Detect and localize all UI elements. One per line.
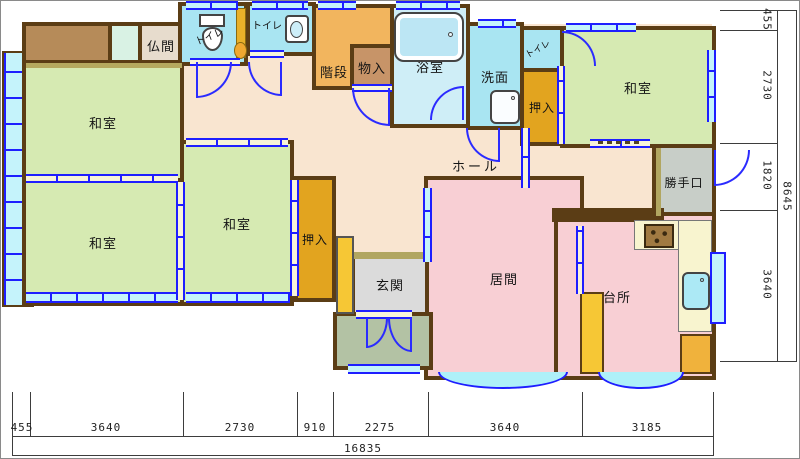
room-washitsu-topleft: 和室 xyxy=(22,60,184,184)
dim-tick xyxy=(713,437,714,456)
bathtub-icon xyxy=(394,12,464,62)
window-living-left xyxy=(423,188,432,262)
sliding-door-hall-mid xyxy=(521,128,530,188)
dim-bottom-3: 910 xyxy=(285,421,345,434)
window-stairs-top xyxy=(318,1,356,10)
stairs-label: 階段 xyxy=(320,62,348,81)
sliding-door-washitsu-bm-top xyxy=(186,138,288,147)
dim-tick xyxy=(582,392,583,437)
shoe-cabinet xyxy=(336,236,354,314)
room-genkan: 玄関 xyxy=(351,252,429,316)
sliding-door-washitsu-bl-bm xyxy=(176,182,185,300)
dim-tick xyxy=(12,437,13,456)
sliding-door-oshiire-center xyxy=(290,180,299,296)
window-washitsu-tr-right xyxy=(707,50,716,122)
window-senmen-top xyxy=(478,19,516,28)
dim-right-0: 455 xyxy=(761,0,774,42)
dim-right-3: 3640 xyxy=(761,263,774,307)
window-toilet1-top xyxy=(186,1,238,10)
dim-bottom-6: 3185 xyxy=(617,421,677,434)
window-bath-top xyxy=(396,1,460,10)
toilet1-heater xyxy=(234,42,247,59)
dim-right-2: 1820 xyxy=(761,154,774,198)
dim-line-right-total xyxy=(796,10,797,362)
dim-tick xyxy=(720,143,777,144)
door-katteguchi xyxy=(714,150,750,186)
dim-line-right xyxy=(777,10,778,362)
window-washitsu-tr-top xyxy=(566,23,636,32)
dim-line-bottom xyxy=(12,436,714,437)
monoire-label: 物入 xyxy=(358,58,386,77)
urinal-bowl-icon xyxy=(290,21,303,38)
room-washitsu-bottomleft: 和室 xyxy=(22,178,184,306)
dim-right-1: 2730 xyxy=(761,64,774,108)
oshiire-label: 押入 xyxy=(302,231,328,248)
dim-bottom-1: 3640 xyxy=(76,421,136,434)
sliding-door-washitsu-tl-bl xyxy=(26,174,178,183)
dim-tick xyxy=(720,10,796,11)
window-toilet2-top xyxy=(252,1,308,10)
stove-icon xyxy=(644,224,674,248)
washitsu-label: 和室 xyxy=(89,233,117,252)
dim-bottom-0: 455 xyxy=(3,421,41,434)
threshold-katteguchi xyxy=(656,148,661,216)
window-washitsu-bl-bottom xyxy=(26,292,178,303)
room-oshiire-center: 押入 xyxy=(294,176,336,302)
dim-bottom-5: 3640 xyxy=(475,421,535,434)
floor-plan: 仏間 和室 和室 和室 押入 物入 浴室 洗面 押入 和室 勝手口 居間 台所 … xyxy=(0,0,800,459)
dim-tick xyxy=(720,210,777,211)
kitchen-sink-icon xyxy=(682,272,710,310)
bathtub-drain-icon xyxy=(448,32,453,37)
katteguchi-label: 勝手口 xyxy=(664,174,703,191)
washitsu-label: 和室 xyxy=(624,78,652,97)
butsuma-label: 仏間 xyxy=(147,36,175,55)
pillar-living-kitchen xyxy=(580,292,604,374)
dim-tick xyxy=(720,361,796,362)
dim-tick xyxy=(428,392,429,437)
sliding-door-living-kitchen xyxy=(576,226,584,294)
cabinet-kitchen-corner xyxy=(680,334,712,374)
oshiire-label: 押入 xyxy=(529,99,555,116)
kitchen-sink-drain-icon xyxy=(700,278,704,282)
living-label: 居間 xyxy=(490,269,518,288)
bay-window-kitchen xyxy=(598,372,684,389)
dim-tick xyxy=(713,392,714,437)
dashed-line-washitsu-tr xyxy=(598,141,642,144)
dim-bottom-4: 2275 xyxy=(350,421,410,434)
washbasin-icon xyxy=(490,90,520,124)
dim-tick xyxy=(183,392,184,437)
threshold-genkan xyxy=(353,252,427,259)
threshold-washitsu-top xyxy=(26,63,182,68)
entrance-step xyxy=(348,364,420,374)
genkan-label: 玄関 xyxy=(376,275,404,294)
washitsu-label: 和室 xyxy=(223,214,251,233)
door-track-toilet2 xyxy=(250,50,284,58)
dim-right-total: 8645 xyxy=(781,175,794,219)
sliding-door-oshiire-topright xyxy=(557,66,565,144)
washbasin-drain-icon xyxy=(511,96,515,100)
dim-bottom-total: 16835 xyxy=(333,442,393,455)
bay-window-living xyxy=(438,372,568,389)
room-washitsu-bottommid: 和室 xyxy=(180,140,294,306)
senmen-label: 洗面 xyxy=(481,67,509,86)
window-washitsu-bm-bottom xyxy=(186,292,290,303)
dim-line-bottom-total xyxy=(12,455,714,456)
toilet2-label: トイレ xyxy=(252,17,282,32)
dim-bottom-2: 2730 xyxy=(210,421,270,434)
kitchen-label: 台所 xyxy=(603,287,631,306)
window-kitchen-right xyxy=(710,252,726,324)
washitsu-label: 和室 xyxy=(89,113,117,132)
